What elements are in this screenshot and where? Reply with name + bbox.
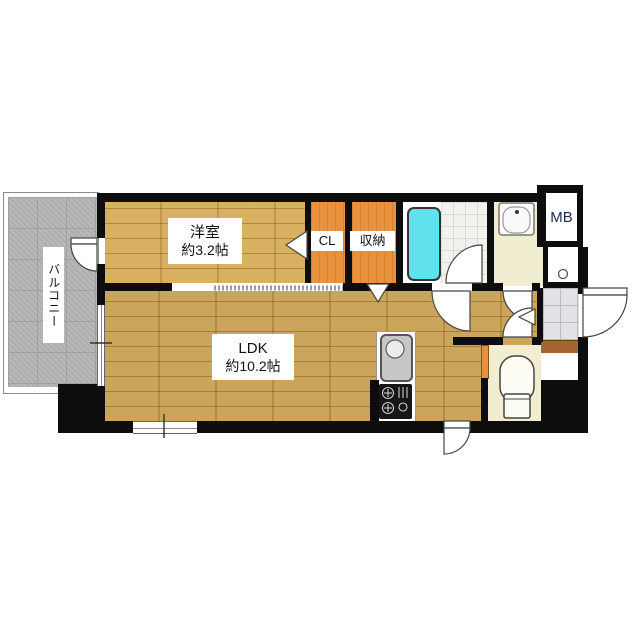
- wall-mid-2: [343, 283, 432, 291]
- wall-storage-bath: [396, 202, 403, 283]
- western-room-label: 洋室 約3.2帖: [168, 218, 242, 264]
- meter-box: MB: [546, 193, 577, 241]
- balcony-label: バルコニー: [43, 247, 64, 343]
- wall-balcony-1: [97, 202, 105, 238]
- toilet-left-wall: [481, 378, 488, 421]
- wall-right-lower: [578, 337, 588, 433]
- wall-toilet-top-2: [532, 337, 541, 345]
- wall-mid-1: [105, 283, 172, 291]
- sliding-door-recess: [172, 283, 343, 291]
- wall-balcony-3: [97, 386, 105, 421]
- wall-mid-3: [472, 283, 503, 291]
- entrance-storage: [545, 354, 578, 380]
- wall-toilet-top-1: [453, 337, 503, 345]
- wall-balcony-2: [97, 264, 105, 305]
- wall-bath-washroom: [487, 202, 494, 291]
- washing-machine-pan: [548, 251, 579, 282]
- washroom: [494, 202, 543, 286]
- kitchen-sink: [380, 334, 413, 382]
- entrance-door-arc: [583, 288, 627, 337]
- closet-label: CL: [311, 231, 343, 251]
- wall-top: [97, 193, 538, 202]
- balcony-window: [97, 305, 105, 386]
- wall-entrance-divider: [537, 288, 543, 342]
- entrance: [543, 288, 579, 340]
- kitchen-wall-stub: [370, 380, 379, 421]
- meter-box-label: MB: [550, 209, 573, 226]
- ldk-and-hallway: [103, 291, 537, 421]
- storage-label: 収納: [350, 231, 395, 251]
- kitchen-stove: [379, 384, 412, 419]
- bathtub: [407, 207, 441, 281]
- wall-right-upper: [578, 247, 588, 294]
- toilet-room: [488, 345, 541, 421]
- ldk-label: LDK 約10.2帖: [212, 334, 294, 380]
- toilet-door-panel: [481, 345, 489, 379]
- floorplan: MB: [0, 0, 640, 640]
- ldk-bottom-window: [133, 421, 197, 434]
- bathroom-tiles: [441, 202, 490, 283]
